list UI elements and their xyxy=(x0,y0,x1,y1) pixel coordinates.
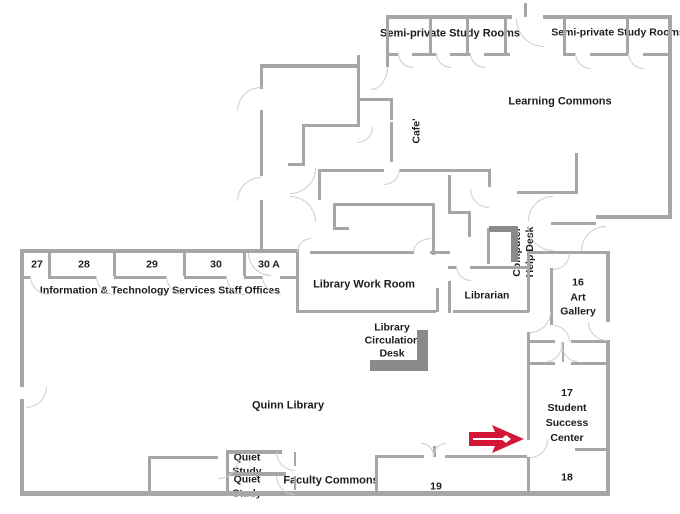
door-swing-arc xyxy=(290,196,316,222)
door-swing-arc xyxy=(371,67,388,90)
wall xyxy=(386,15,389,67)
wall xyxy=(302,124,305,166)
label-ssc-number: 17 xyxy=(546,386,589,401)
door-swing-arc xyxy=(575,53,591,69)
wall xyxy=(563,19,566,56)
circulation-desk-shape xyxy=(370,360,428,371)
door-swing-arc xyxy=(30,276,49,295)
wall xyxy=(243,253,246,276)
wall xyxy=(390,122,393,162)
wall xyxy=(113,253,116,276)
wall xyxy=(571,362,608,365)
wall xyxy=(470,266,529,269)
wall xyxy=(260,64,263,89)
label-semi-private-study-rooms-right: Semi-private Study Rooms xyxy=(551,27,680,40)
wall xyxy=(448,281,451,313)
wall xyxy=(527,457,530,493)
wall xyxy=(296,310,436,313)
wall xyxy=(448,175,451,213)
door-swing-arc xyxy=(248,253,271,276)
wall xyxy=(184,276,226,279)
label-circulation-line1: Library xyxy=(365,322,420,335)
wall xyxy=(333,227,349,230)
wall xyxy=(487,228,490,264)
label-room-27: 27 xyxy=(31,259,43,272)
wall xyxy=(432,203,435,255)
door-swing-arc xyxy=(436,53,451,68)
wall xyxy=(450,53,466,56)
computer-help-desk-shape xyxy=(511,229,518,262)
wall xyxy=(390,98,393,120)
wall xyxy=(48,276,96,279)
wall xyxy=(288,163,304,166)
wall xyxy=(448,266,456,269)
door-swing-arc xyxy=(384,169,400,185)
wall xyxy=(517,191,577,194)
wall xyxy=(590,53,628,56)
wall xyxy=(563,53,575,56)
label-ssc-line1: Student xyxy=(546,401,589,416)
door-swing-arc xyxy=(357,127,373,143)
door-swing-arc xyxy=(290,168,316,194)
wall xyxy=(148,456,151,493)
wall xyxy=(296,249,299,313)
door-swing-arc xyxy=(470,53,485,68)
label-library-work-room: Library Work Room xyxy=(313,279,415,292)
wall xyxy=(183,253,186,276)
wall xyxy=(302,124,360,127)
wall xyxy=(643,53,668,56)
wall xyxy=(596,215,672,219)
wall xyxy=(333,203,435,206)
wall xyxy=(262,64,359,68)
wall xyxy=(333,203,336,230)
label-ssc-line2: Success xyxy=(546,416,589,431)
door-swing-arc xyxy=(398,53,413,68)
wall xyxy=(357,98,392,101)
label-circulation-line3: Desk xyxy=(365,348,420,361)
label-faculty-commons: Faculty Commons xyxy=(283,475,378,488)
wall xyxy=(48,253,51,276)
label-librarian: Librarian xyxy=(465,290,510,303)
wall xyxy=(445,455,527,458)
wall xyxy=(575,153,578,194)
wall xyxy=(626,19,629,55)
wall xyxy=(318,169,384,172)
wall xyxy=(226,450,282,454)
wall xyxy=(148,456,218,459)
label-student-success-center: 17 Student Success Center xyxy=(546,386,589,446)
door-swing-arc xyxy=(276,452,295,471)
door-swing-arc xyxy=(433,443,446,456)
door-swing-arc xyxy=(628,53,644,69)
label-circulation-line2: Circulation xyxy=(365,335,420,348)
wall xyxy=(551,222,596,225)
door-swing-arc xyxy=(553,325,570,342)
label-art-gallery-line2: Gallery xyxy=(560,304,596,319)
wall xyxy=(430,251,450,254)
label-semi-private-study-rooms-left: Semi-private Study Rooms xyxy=(380,28,520,41)
label-art-gallery: 16 Art Gallery xyxy=(560,275,596,319)
label-quinn-library: Quinn Library xyxy=(252,400,324,413)
wall xyxy=(466,19,469,55)
wall xyxy=(375,455,378,493)
wall xyxy=(527,332,530,440)
label-room-28: 28 xyxy=(78,259,90,272)
wall xyxy=(504,53,510,56)
door-swing-arc xyxy=(297,238,311,252)
door-swing-arc xyxy=(530,440,548,458)
door-swing-arc xyxy=(553,253,570,270)
door-swing-arc xyxy=(237,87,261,111)
wall xyxy=(114,276,166,279)
wall xyxy=(668,15,672,219)
door-swing-arc xyxy=(528,196,553,221)
door-swing-arc xyxy=(516,19,544,47)
wall xyxy=(527,362,555,365)
label-room-29: 29 xyxy=(146,259,158,272)
door-swing-arc xyxy=(413,238,431,252)
wall xyxy=(260,110,263,176)
door-swing-arc xyxy=(588,322,607,341)
wall xyxy=(20,491,610,496)
wall xyxy=(20,249,24,387)
wall xyxy=(375,455,424,458)
wall xyxy=(412,53,436,56)
door-swing-arc xyxy=(470,189,489,208)
label-room-18: 18 xyxy=(561,472,573,485)
wall xyxy=(504,19,507,55)
wall xyxy=(20,399,24,491)
door-swing-arc xyxy=(237,177,261,201)
wall xyxy=(352,251,414,254)
wall xyxy=(606,251,610,322)
wall xyxy=(527,251,530,312)
label-art-gallery-line1: Art xyxy=(560,290,596,305)
label-cafe: Cafe' xyxy=(411,118,424,143)
label-quiet-study-lower: Quiet Study xyxy=(232,474,261,501)
wall xyxy=(448,211,470,214)
label-library-circulation-desk: Library Circulation Desk xyxy=(365,322,420,361)
circulation-desk-shape xyxy=(417,330,428,361)
label-art-gallery-number: 16 xyxy=(560,275,596,290)
wall xyxy=(357,55,360,127)
wall xyxy=(524,3,527,17)
wall xyxy=(453,310,529,313)
wall xyxy=(399,169,489,172)
door-swing-arc xyxy=(581,226,606,251)
door-swing-arc xyxy=(530,312,551,333)
wall xyxy=(318,169,321,200)
wall xyxy=(244,276,262,279)
wall xyxy=(388,15,512,19)
floor-plan: Semi-private Study Rooms Semi-private St… xyxy=(0,0,680,514)
label-ssc-line3: Center xyxy=(546,431,589,446)
location-arrow-icon xyxy=(467,424,527,454)
wall xyxy=(484,53,504,56)
wall xyxy=(388,53,398,56)
wall xyxy=(310,251,352,254)
wall xyxy=(575,448,606,451)
label-room-30: 30 xyxy=(210,259,222,272)
wall xyxy=(429,19,432,55)
wall xyxy=(22,276,30,279)
wall xyxy=(260,200,263,249)
wall xyxy=(280,276,298,279)
door-swing-arc xyxy=(456,266,471,281)
wall xyxy=(436,288,439,312)
wall xyxy=(468,211,471,237)
door-swing-arc xyxy=(26,387,47,408)
wall xyxy=(488,169,491,187)
label-learning-commons: Learning Commons xyxy=(508,96,611,109)
